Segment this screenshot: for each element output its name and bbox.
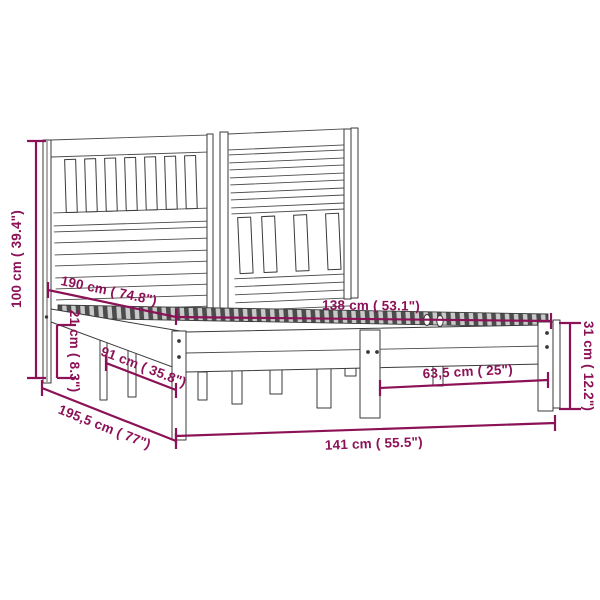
dimension-label: 141 cm ( 55.5") [325, 434, 423, 452]
slat-holder-loop [437, 316, 443, 327]
dimension-label: 31 cm ( 12.2") [581, 321, 596, 411]
dimension-label: 21 cm ( 8.3") [67, 310, 82, 393]
center-front-leg [360, 330, 380, 418]
screw-dot [177, 355, 181, 359]
headboard-slat [238, 217, 253, 274]
headboard-slat [125, 157, 138, 210]
headboard-slat [185, 155, 198, 208]
headboard-slat [326, 213, 341, 270]
dimension-label: 63,5 cm ( 25") [422, 362, 513, 381]
front-right-leg [538, 322, 553, 411]
screw-dot [375, 350, 379, 354]
dimension-label: 100 cm ( 39.4") [9, 210, 24, 308]
headboard-slat [262, 216, 277, 273]
headboard-slat [145, 157, 158, 210]
headboard-right-post [351, 128, 358, 298]
support-leg [198, 372, 207, 400]
headboard-center-post [207, 134, 213, 316]
dimension-overall-length: 195,5 cm ( 77") [42, 380, 176, 452]
headboard-right-post [344, 129, 351, 299]
support-leg [232, 370, 242, 404]
headboard-right-panel-slat-lines [229, 150, 347, 208]
dimension-label: 138 cm ( 53.1") [322, 297, 420, 313]
dimension-foot-end-height: 31 cm ( 12.2") [559, 321, 596, 411]
screw-dot [545, 345, 549, 349]
dimension-line [559, 323, 581, 409]
support-leg [317, 366, 331, 408]
dimension-overall-height: 100 cm ( 39.4") [9, 141, 46, 378]
headboard-slat [85, 159, 98, 212]
screw-dot [177, 339, 181, 343]
headboard-slat [165, 156, 178, 209]
dimension-annotations: 100 cm ( 39.4") 21 cm ( 8.3") 190 cm ( 7… [9, 141, 596, 453]
bed-frame-diagram: 100 cm ( 39.4") 21 cm ( 8.3") 190 cm ( 7… [0, 0, 600, 600]
headboard-right-panel [228, 129, 352, 311]
screw-dot [45, 315, 48, 318]
screw-dot [545, 331, 549, 335]
rear-right-leg [553, 320, 560, 408]
headboard-center-post [220, 132, 228, 318]
product-dimension-image: 100 cm ( 39.4") 21 cm ( 8.3") 190 cm ( 7… [0, 0, 600, 600]
headboard-slat [65, 159, 78, 212]
screw-dot [366, 350, 370, 354]
headboard-slat [105, 158, 118, 211]
bed-frame-drawing [43, 128, 560, 440]
headboard-slat [294, 215, 309, 272]
support-leg [270, 368, 282, 394]
dimension-overall-width: 141 cm ( 55.5") [176, 415, 555, 453]
